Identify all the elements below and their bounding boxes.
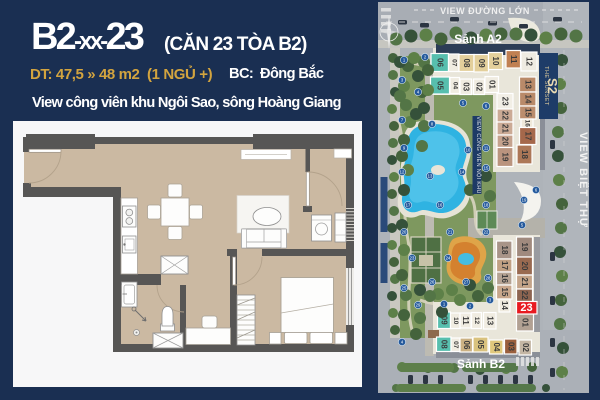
svg-text:27: 27: [464, 280, 469, 285]
svg-text:17: 17: [500, 261, 509, 270]
svg-text:11: 11: [509, 55, 518, 64]
svg-text:06: 06: [435, 58, 444, 67]
svg-text:21: 21: [520, 278, 529, 287]
svg-text:11: 11: [484, 146, 489, 151]
svg-text:04: 04: [451, 82, 458, 90]
svg-text:17: 17: [523, 132, 532, 141]
svg-text:28: 28: [486, 276, 491, 281]
svg-text:12: 12: [400, 170, 405, 175]
svg-text:12: 12: [525, 57, 534, 66]
svg-text:21: 21: [448, 230, 453, 235]
svg-text:15: 15: [484, 166, 489, 171]
svg-text:18: 18: [500, 246, 509, 255]
svg-text:05: 05: [436, 81, 445, 90]
svg-text:20: 20: [520, 262, 529, 271]
svg-text:03: 03: [506, 342, 515, 351]
svg-text:18: 18: [484, 203, 489, 208]
svg-text:15: 15: [523, 108, 532, 117]
svg-text:20: 20: [402, 230, 407, 235]
svg-text:19: 19: [501, 153, 510, 162]
svg-text:13: 13: [428, 174, 433, 179]
svg-text:19: 19: [522, 198, 527, 203]
svg-text:23: 23: [520, 302, 532, 314]
svg-text:21: 21: [501, 124, 510, 133]
svg-text:23: 23: [410, 256, 415, 261]
svg-text:Sảnh A2: Sảnh A2: [454, 32, 502, 46]
svg-text:01: 01: [487, 80, 496, 89]
svg-text:11: 11: [461, 316, 470, 325]
svg-text:07: 07: [450, 59, 457, 67]
svg-text:13: 13: [485, 316, 494, 325]
svg-text:16: 16: [438, 203, 443, 208]
svg-text:02: 02: [475, 82, 484, 91]
svg-text:06: 06: [462, 341, 471, 350]
svg-text:04: 04: [492, 343, 501, 352]
svg-text:24: 24: [446, 256, 451, 261]
svg-text:17: 17: [406, 203, 411, 208]
svg-text:25: 25: [402, 286, 407, 291]
svg-text:22: 22: [520, 291, 529, 300]
svg-text:22: 22: [501, 111, 510, 120]
svg-text:23: 23: [501, 97, 510, 106]
svg-text:01: 01: [521, 318, 530, 327]
svg-text:26: 26: [430, 280, 435, 285]
svg-text:02: 02: [521, 343, 530, 352]
svg-text:07: 07: [452, 341, 459, 349]
svg-text:19: 19: [520, 243, 529, 252]
svg-text:10: 10: [466, 148, 471, 153]
svg-text:16: 16: [500, 274, 509, 283]
svg-text:VIEW ĐƯỜNG LỚN: VIEW ĐƯỜNG LỚN: [440, 5, 530, 16]
svg-text:29: 29: [416, 303, 421, 308]
svg-text:10: 10: [491, 57, 500, 66]
svg-text:09: 09: [477, 59, 486, 68]
svg-text:05: 05: [476, 340, 485, 349]
svg-text:16: 16: [524, 120, 531, 128]
svg-text:20: 20: [501, 137, 510, 146]
svg-text:12: 12: [473, 317, 480, 325]
svg-text:15: 15: [500, 288, 509, 297]
svg-text:14: 14: [460, 170, 465, 175]
svg-text:18: 18: [520, 150, 529, 159]
svg-text:S2: S2: [545, 78, 560, 94]
svg-text:13: 13: [523, 80, 532, 89]
svg-text:03: 03: [461, 82, 470, 91]
svg-text:08: 08: [439, 340, 448, 349]
svg-text:Sảnh B2: Sảnh B2: [457, 357, 505, 371]
svg-text:22: 22: [484, 230, 489, 235]
svg-text:08: 08: [462, 59, 471, 68]
svg-text:VIEW CÔNG VIÊN NỘI KHU: VIEW CÔNG VIÊN NỘI KHU: [475, 116, 483, 194]
svg-text:VIEW BIỆT THỰ: VIEW BIỆT THỰ: [577, 132, 589, 228]
svg-text:14: 14: [500, 301, 509, 310]
svg-text:14: 14: [523, 95, 532, 104]
svg-text:10: 10: [452, 317, 459, 325]
